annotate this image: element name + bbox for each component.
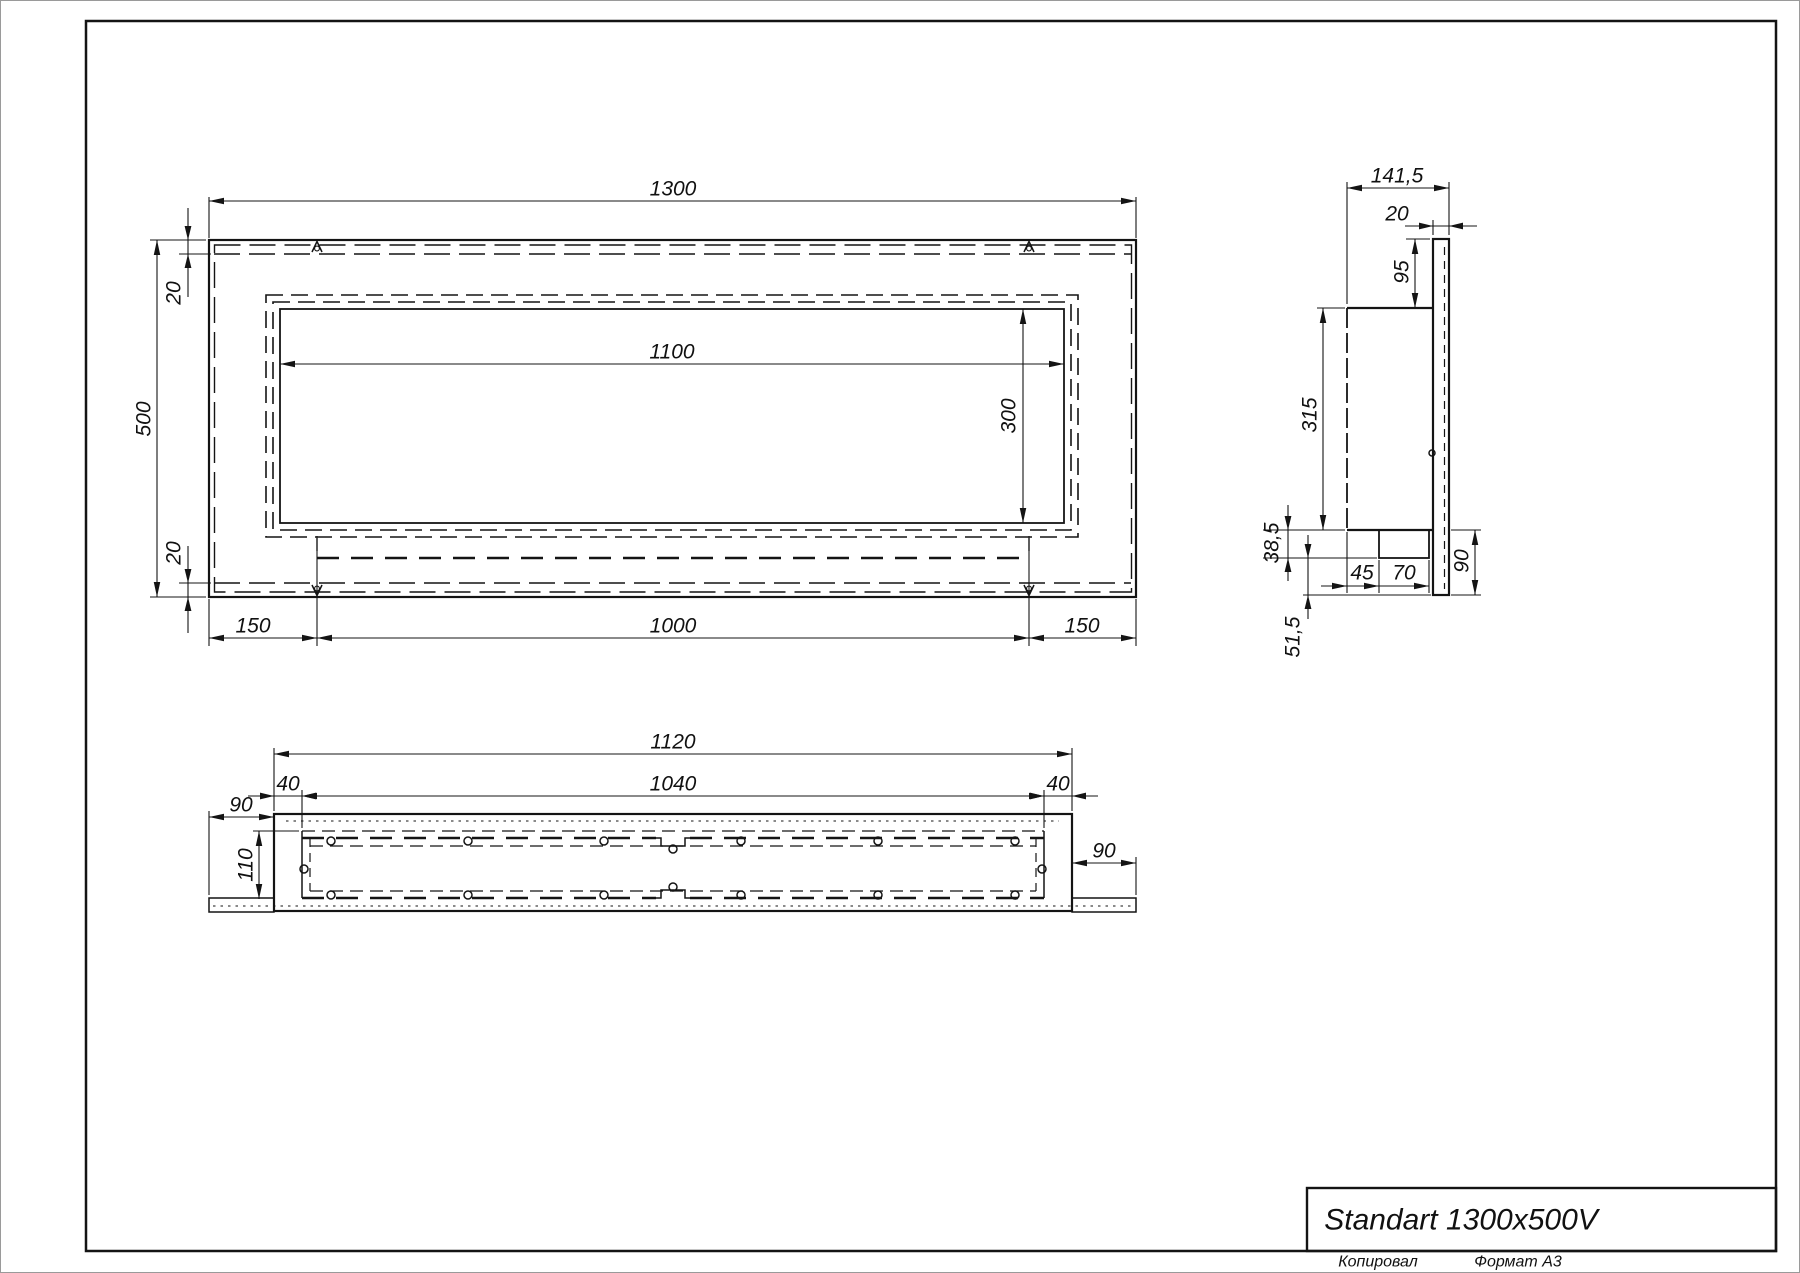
dim-top-opening-width: 1040 [650,773,697,796]
dim-side-tray-drop: 38,5 [1261,522,1284,563]
dim-front-opening-height: 300 [998,398,1021,433]
sheet-frame [86,21,1776,1251]
drawing-sheet: 1300 500 20 20 1100 300 150 1000 [0,0,1800,1273]
dim-front-total-width: 1300 [650,178,697,201]
front-view-dimensions: 1300 500 20 20 1100 300 150 1000 [133,178,1137,647]
drawing-canvas: 1300 500 20 20 1100 300 150 1000 [1,1,1800,1273]
dim-side-total-depth: 141,5 [1371,165,1424,188]
side-view: 141,5 20 95 315 38,5 51,5 [1261,165,1482,658]
dim-top-flange-ext-left: 90 [229,794,253,817]
dim-front-bottom-inset: 20 [163,541,186,566]
title-block: Standart 1300x500V Копировал Формат А3 [1307,1188,1776,1271]
copied-by-label: Копировал [1338,1254,1418,1271]
side-view-outline [1347,239,1449,595]
dim-front-foot-center: 1000 [650,615,697,638]
dim-top-body-depth: 110 [235,848,258,882]
dim-top-margin-left: 40 [276,773,300,796]
top-view: 1120 1040 40 40 90 90 110 [209,731,1136,913]
dim-side-body-height: 315 [1299,397,1322,432]
dim-side-flange-top-ext: 95 [1391,260,1414,284]
dim-side-flange-bottom-ext: 90 [1451,549,1474,573]
dim-side-tray-width: 70 [1392,562,1416,585]
dim-top-flange-ext-right: 90 [1092,840,1116,863]
dim-front-foot-left: 150 [235,615,270,638]
title-block-model: Standart 1300x500V [1324,1204,1601,1237]
front-view: 1300 500 20 20 1100 300 150 1000 [133,178,1137,647]
dim-top-body-width: 1120 [650,731,695,754]
dim-front-foot-right: 150 [1064,615,1099,638]
dim-front-top-inset: 20 [163,281,186,306]
dim-side-tray-offset: 45 [1350,562,1374,585]
dim-front-opening-width: 1100 [649,341,694,364]
top-view-outline [209,814,1136,912]
dim-side-flange-thickness: 20 [1384,203,1409,226]
dim-top-margin-right: 40 [1046,773,1070,796]
dim-front-total-height: 500 [133,401,156,436]
dim-side-tray-to-flange: 51,5 [1282,616,1305,657]
format-label: Формат А3 [1474,1254,1562,1271]
